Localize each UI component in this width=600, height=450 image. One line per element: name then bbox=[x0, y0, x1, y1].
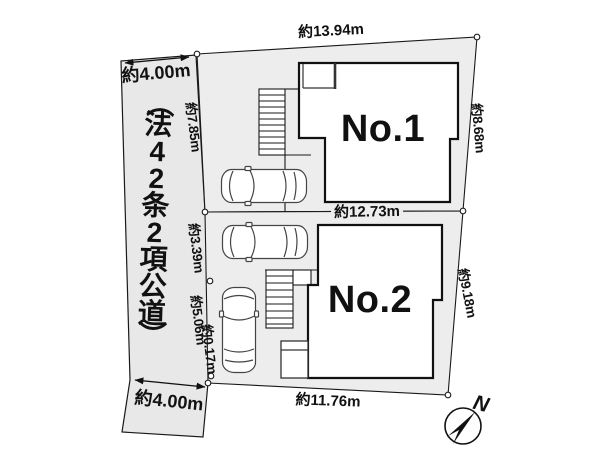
lot2-name: No.2 bbox=[328, 281, 412, 319]
plan-drawing bbox=[0, 0, 600, 450]
car-icon bbox=[222, 167, 307, 206]
car-icon bbox=[223, 223, 308, 262]
dim-lot1-top: 約13.94m bbox=[298, 22, 365, 40]
site-plan: （法42条2項公道） 約4.00m 約4.00m 約13.94m 約7.85m … bbox=[0, 0, 600, 450]
dim-lot-boundary: 約12.73m bbox=[331, 204, 403, 220]
lot1-name: No.1 bbox=[341, 110, 425, 148]
car-icon bbox=[220, 288, 259, 373]
building2-porch bbox=[281, 341, 308, 378]
dim-lot1-right: 約8.68m bbox=[469, 103, 487, 154]
dim-lot2-bottom: 約11.76m bbox=[295, 392, 361, 409]
